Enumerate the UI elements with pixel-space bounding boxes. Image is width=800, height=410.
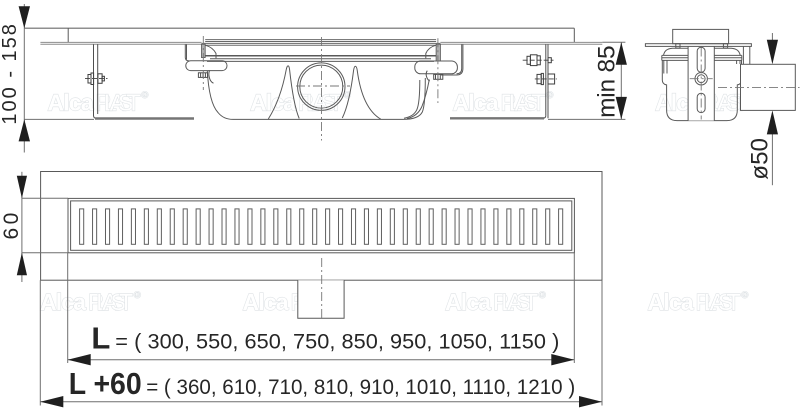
svg-text:L +60: L +60 — [69, 366, 142, 401]
svg-text:Alca: Alca — [648, 289, 694, 315]
svg-text:®: ® — [142, 90, 149, 100]
svg-text:Alca: Alca — [453, 89, 499, 115]
svg-text:PLAST: PLAST — [501, 89, 546, 115]
svg-text:PLAST: PLAST — [96, 89, 141, 115]
svg-text:PLAST: PLAST — [493, 289, 538, 315]
svg-text:= ( 300, 550, 650, 750, 850, 9: = ( 300, 550, 650, 750, 850, 950, 1050, … — [115, 329, 559, 354]
svg-text:min 85: min 85 — [594, 45, 621, 118]
svg-text:PLAST: PLAST — [88, 289, 133, 315]
svg-text:PLAST: PLAST — [696, 289, 741, 315]
svg-text:Alca: Alca — [243, 289, 289, 315]
svg-text:= ( 360, 610, 710, 810, 910, 1: = ( 360, 610, 710, 810, 910, 1010, 1110,… — [146, 376, 575, 399]
svg-text:L: L — [91, 321, 110, 356]
svg-text:®: ® — [539, 290, 546, 300]
svg-text:Alca: Alca — [40, 289, 86, 315]
svg-text:100 - 158: 100 - 158 — [0, 22, 21, 125]
svg-text:60: 60 — [0, 209, 23, 239]
svg-text:ø50: ø50 — [747, 138, 774, 180]
svg-text:Alca: Alca — [48, 89, 94, 115]
svg-text:®: ® — [742, 290, 749, 300]
svg-text:Alca: Alca — [445, 289, 491, 315]
svg-text:®: ® — [134, 290, 141, 300]
